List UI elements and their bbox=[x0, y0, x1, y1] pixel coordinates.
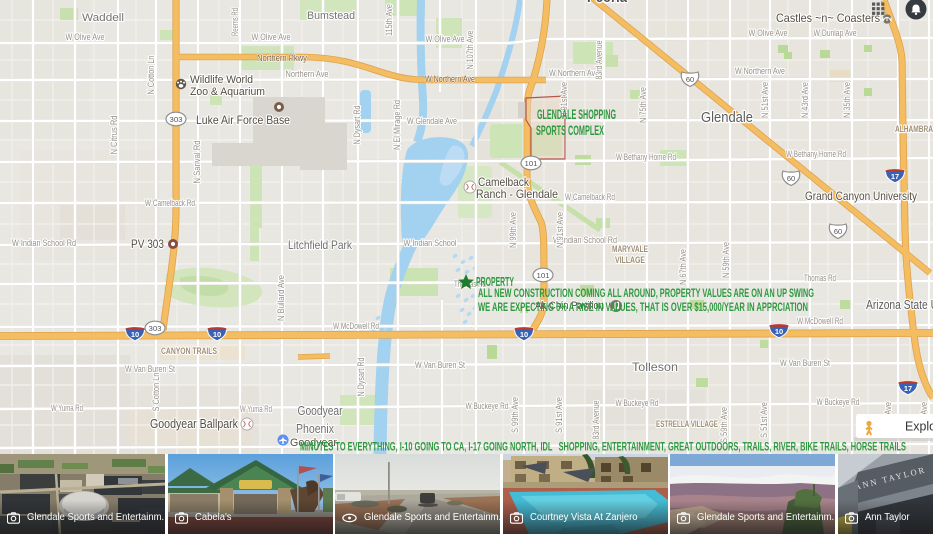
svg-text:Ranch - Glendale: Ranch - Glendale bbox=[476, 187, 558, 201]
svg-text:W Bethany Home Rd: W Bethany Home Rd bbox=[786, 149, 846, 159]
svg-text:W Dunlap Ave: W Dunlap Ave bbox=[814, 28, 857, 38]
svg-text:Glendale: Glendale bbox=[701, 109, 753, 126]
svg-text:Litchfield Park: Litchfield Park bbox=[288, 238, 353, 252]
svg-text:W Olive Ave: W Olive Ave bbox=[749, 28, 788, 38]
svg-text:N Dysart Rd: N Dysart Rd bbox=[352, 106, 362, 145]
svg-text:W Olive Ave: W Olive Ave bbox=[66, 32, 105, 42]
svg-text:60: 60 bbox=[686, 75, 694, 84]
svg-text:W Indian School: W Indian School bbox=[404, 238, 457, 248]
svg-text:N 51st Ave: N 51st Ave bbox=[760, 82, 770, 118]
svg-text:W Camelback Rd: W Camelback Rd bbox=[565, 192, 615, 202]
svg-text:Northern Ave: Northern Ave bbox=[286, 69, 329, 79]
svg-text:W Buckeye Rd: W Buckeye Rd bbox=[817, 397, 860, 407]
svg-text:N Sarival Rd: N Sarival Rd bbox=[192, 141, 202, 184]
svg-text:W Van Buren St: W Van Buren St bbox=[125, 364, 175, 374]
svg-text:83rd Avenue: 83rd Avenue bbox=[591, 401, 601, 440]
svg-text:S 91st Ave: S 91st Ave bbox=[554, 397, 564, 433]
svg-text:303: 303 bbox=[170, 117, 183, 124]
svg-text:W Yuma Rd: W Yuma Rd bbox=[51, 403, 83, 413]
svg-text:17: 17 bbox=[904, 384, 912, 393]
svg-text:Explore: Explore bbox=[905, 420, 933, 434]
svg-text:W Yuma Rd: W Yuma Rd bbox=[240, 404, 272, 414]
svg-text:Northern Pkwy: Northern Pkwy bbox=[257, 53, 307, 63]
svg-text:N 107th Ave: N 107th Ave bbox=[465, 31, 475, 70]
svg-text:WE ARE EXPECTING 6% A RISE IN: WE ARE EXPECTING 6% A RISE IN VALUES, TH… bbox=[478, 300, 808, 314]
svg-text:W McDowell Rd: W McDowell Rd bbox=[797, 316, 843, 326]
svg-text:S 59th Ave: S 59th Ave bbox=[719, 407, 729, 443]
svg-text:60: 60 bbox=[787, 174, 795, 183]
svg-text:W McDowell Rd: W McDowell Rd bbox=[333, 321, 379, 331]
svg-text:17: 17 bbox=[891, 172, 899, 181]
svg-text:W Buckeye Rd: W Buckeye Rd bbox=[466, 401, 509, 411]
svg-text:N Cotton Ln: N Cotton Ln bbox=[146, 56, 156, 95]
svg-text:W Glendale Ave: W Glendale Ave bbox=[407, 116, 457, 126]
svg-text:GLENDALE SHOPPING: GLENDALE SHOPPING bbox=[537, 106, 616, 122]
svg-text:CANYON TRAILS: CANYON TRAILS bbox=[161, 346, 217, 356]
svg-text:W Northern Ave: W Northern Ave bbox=[735, 66, 785, 76]
svg-text:W Buckeye Rd: W Buckeye Rd bbox=[616, 398, 659, 408]
svg-text:W Northern Ave: W Northern Ave bbox=[425, 74, 475, 84]
svg-text:Waddell: Waddell bbox=[82, 12, 124, 24]
svg-text:N 59th Ave: N 59th Ave bbox=[721, 242, 731, 278]
svg-text:ALL NEW CONSTRUCTION COMING AL: ALL NEW CONSTRUCTION COMING ALL AROUND, … bbox=[478, 286, 814, 300]
svg-text:W Camelback Rd: W Camelback Rd bbox=[145, 198, 195, 208]
svg-text:MARYVALE: MARYVALE bbox=[612, 244, 648, 254]
svg-text:101: 101 bbox=[525, 161, 538, 168]
svg-text:N El Mirage Rd: N El Mirage Rd bbox=[392, 100, 402, 150]
svg-text:10: 10 bbox=[775, 327, 783, 336]
svg-text:101: 101 bbox=[537, 273, 550, 280]
svg-text:Tolleson: Tolleson bbox=[632, 360, 678, 374]
svg-text:N 91st Ave: N 91st Ave bbox=[555, 212, 565, 248]
svg-text:N Dysart Rd: N Dysart Rd bbox=[356, 358, 366, 397]
svg-text:115th Ave: 115th Ave bbox=[384, 4, 394, 36]
svg-text:N 75th Ave: N 75th Ave bbox=[638, 87, 648, 123]
svg-text:Thomas Rd: Thomas Rd bbox=[804, 273, 836, 283]
svg-text:10: 10 bbox=[520, 330, 528, 339]
svg-text:Grand Canyon University: Grand Canyon University bbox=[805, 189, 917, 203]
svg-text:S 99th Ave: S 99th Ave bbox=[510, 397, 520, 433]
svg-text:N 99th Ave: N 99th Ave bbox=[508, 212, 518, 248]
svg-text:W Van Buren St: W Van Buren St bbox=[780, 358, 830, 368]
svg-text:Reems Rd: Reems Rd bbox=[230, 8, 240, 36]
svg-text:N 67th Ave: N 67th Ave bbox=[678, 249, 688, 285]
svg-text:W Indian School Rd: W Indian School Rd bbox=[12, 238, 76, 248]
svg-text:W Olive Ave: W Olive Ave bbox=[426, 34, 465, 44]
svg-text:Arizona State U: Arizona State U bbox=[866, 297, 933, 312]
svg-text:W Olive Ave: W Olive Ave bbox=[252, 32, 291, 42]
svg-text:Zoo & Aquarium: Zoo & Aquarium bbox=[190, 86, 265, 98]
svg-text:VILLAGE: VILLAGE bbox=[615, 255, 645, 265]
svg-text:10: 10 bbox=[131, 330, 139, 339]
svg-text:MINUTES TO EVERYTHING, I-10 G: MINUTES TO EVERYTHING, I-10 GOING TO CA,… bbox=[300, 440, 906, 454]
svg-text:Wildlife World: Wildlife World bbox=[190, 74, 253, 86]
svg-text:60: 60 bbox=[834, 227, 842, 236]
svg-text:N Citrus Rd: N Citrus Rd bbox=[109, 116, 119, 155]
svg-text:ALHAMBRA: ALHAMBRA bbox=[895, 124, 933, 134]
svg-text:Phoenix: Phoenix bbox=[296, 421, 334, 436]
svg-text:Goodyear: Goodyear bbox=[298, 403, 344, 418]
svg-text:83rd Avenue: 83rd Avenue bbox=[594, 41, 604, 80]
svg-text:Luke Air Force Base: Luke Air Force Base bbox=[196, 113, 290, 127]
svg-text:N 35th Ave: N 35th Ave bbox=[842, 82, 852, 118]
svg-text:S Cotton Ln: S Cotton Ln bbox=[151, 373, 161, 412]
svg-text:N Bullard Ave: N Bullard Ave bbox=[276, 275, 286, 321]
svg-text:PV 303: PV 303 bbox=[131, 237, 164, 251]
svg-text:Castles ~n~ Coasters: Castles ~n~ Coasters bbox=[776, 11, 880, 25]
svg-text:S 51st Ave: S 51st Ave bbox=[759, 402, 769, 438]
svg-text:W Bethany Home Rd: W Bethany Home Rd bbox=[616, 152, 676, 162]
svg-text:10: 10 bbox=[213, 330, 221, 339]
svg-text:SPORTS COMPLEX: SPORTS COMPLEX bbox=[536, 122, 604, 138]
svg-text:ESTRELLA VILLAGE: ESTRELLA VILLAGE bbox=[656, 419, 718, 429]
svg-text:Bumstead: Bumstead bbox=[307, 10, 355, 22]
svg-text:Goodyear Ballpark: Goodyear Ballpark bbox=[150, 416, 238, 431]
svg-text:Peoria: Peoria bbox=[587, 0, 628, 6]
svg-text:303: 303 bbox=[149, 326, 162, 333]
svg-text:N 43rd Ave: N 43rd Ave bbox=[800, 82, 810, 118]
svg-text:W Van Buren St: W Van Buren St bbox=[415, 360, 465, 370]
svg-text:W Northern Ave: W Northern Ave bbox=[549, 68, 599, 78]
